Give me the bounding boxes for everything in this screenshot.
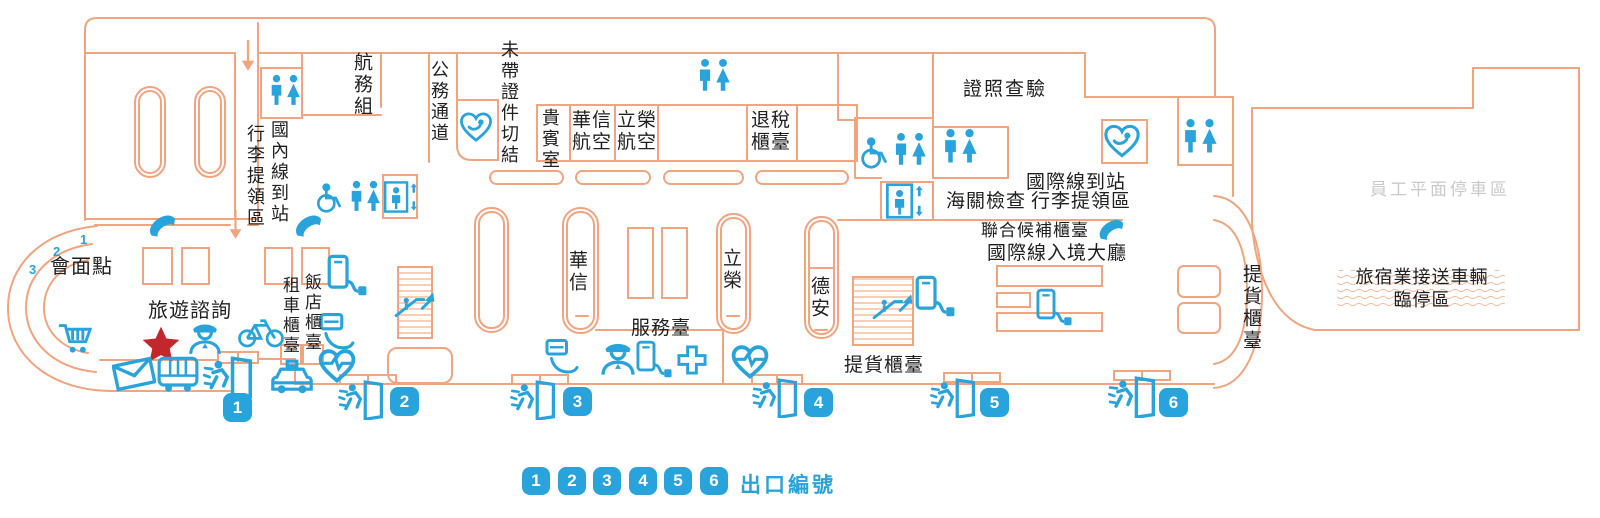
atm-card-icon	[544, 336, 580, 378]
aed-icon	[726, 342, 774, 380]
label-passport-inspection: 證照查驗	[963, 79, 1047, 101]
telephone-icon	[290, 206, 324, 242]
exit-badge-1: 1	[223, 393, 252, 422]
phone-charging-icon	[914, 274, 956, 318]
meeting-lane-number: 3	[29, 262, 36, 277]
label-vip-lounge: 貴賓室	[541, 108, 559, 171]
label-cargo-pickup-counter-east: 提貨櫃臺	[1241, 264, 1260, 352]
restroom-icon	[346, 180, 384, 214]
legend-exit-badge-4: 4	[629, 467, 657, 495]
nursing-room-icon	[458, 110, 494, 144]
taxi-icon	[268, 358, 316, 398]
escalator-icon	[392, 288, 438, 320]
elevator-icon	[384, 177, 418, 217]
label-carousel-uni: 立榮	[721, 248, 740, 292]
shopping-cart-icon	[58, 320, 96, 356]
meeting-lane-number: 1	[80, 232, 87, 247]
exit-badge-3: 3	[563, 387, 592, 416]
elevator-icon	[886, 182, 924, 220]
restroom-icon	[1178, 118, 1222, 156]
restroom-icon	[890, 132, 930, 168]
exit-badge-4: 4	[804, 388, 833, 417]
restroom-icon	[938, 128, 982, 166]
label-customs-inspection: 海關檢查	[946, 191, 1026, 213]
wheelchair-icon	[856, 136, 892, 170]
legend-title: 出口編號	[740, 469, 836, 499]
police-officer-icon	[598, 338, 638, 378]
bicycle-icon	[238, 316, 284, 350]
exit-door-icon	[926, 376, 982, 418]
label-car-rental-counter: 租車櫃臺	[281, 276, 298, 356]
label-meeting-point: 會面點	[50, 256, 113, 280]
legend-exit-badge-3: 3	[593, 467, 621, 495]
telephone-icon	[1094, 210, 1126, 246]
label-official-passage: 公務通道	[430, 60, 448, 144]
label-tax-refund-counter: 退稅 櫃臺	[751, 110, 791, 155]
mailbox-icon	[112, 354, 156, 394]
label-hotel-shuttle-zone: 旅宿業接送車輛 臨停區	[1337, 266, 1507, 311]
legend-exit-badge-5: 5	[664, 467, 692, 495]
label-carousel-daily-air: 德安	[809, 276, 828, 320]
label-intl-arrival-hall: 國際線入境大廳	[987, 243, 1127, 265]
label-joint-standby-counter: 聯合候補櫃臺	[981, 221, 1089, 241]
information-officer-icon	[186, 318, 224, 358]
phone-charging-icon	[634, 340, 674, 378]
label-cargo-pickup-counter-south: 提貨櫃臺	[844, 355, 924, 377]
label-carousel-mandarin: 華信	[567, 250, 586, 294]
phone-charging-icon	[326, 254, 368, 296]
exit-door-icon	[334, 378, 390, 420]
label-mandarin-airlines: 華信 航空	[572, 110, 612, 155]
label-hotel-counter: 飯店櫃臺	[303, 273, 320, 353]
escalator-icon	[868, 290, 918, 322]
arrow-down-icon	[240, 36, 256, 76]
restroom-icon	[266, 74, 304, 108]
terminal-floor-map: 航務組 行李提領區 國內線到站 公務通道 未帶證件切結 貴賓室 華信 航空 立榮…	[0, 0, 1600, 518]
label-service-desk: 服務臺	[631, 318, 691, 340]
label-flight-operations: 航務組	[352, 52, 371, 118]
label-domestic-arrivals: 國內線到站	[270, 120, 288, 225]
restroom-icon	[694, 58, 734, 94]
phone-charging-icon	[1034, 288, 1074, 326]
label-travel-information: 旅遊諮詢	[148, 300, 232, 324]
nursing-room-icon	[1102, 122, 1142, 160]
first-aid-icon	[676, 344, 708, 376]
exit-badge-2: 2	[390, 387, 419, 416]
label-staff-parking: 員工平面停車區	[1370, 180, 1510, 200]
legend-exit-badge-1: 1	[522, 467, 550, 495]
legend-exit-badge-2: 2	[558, 467, 586, 495]
arrow-down-icon	[228, 208, 243, 242]
label-uni-air: 立榮 航空	[617, 110, 657, 155]
meeting-lane-number: 2	[53, 244, 60, 259]
terminal-structure	[0, 0, 1600, 518]
bus-icon	[156, 354, 200, 394]
label-intl-baggage-claim: 行李提領區	[1031, 191, 1131, 213]
exit-door-icon	[748, 376, 804, 418]
telephone-icon	[144, 206, 178, 242]
exit-badge-6: 6	[1159, 388, 1188, 417]
exit-door-icon	[1104, 374, 1162, 418]
legend-exit-badge-6: 6	[700, 467, 728, 495]
label-domestic-baggage-claim: 行李提領區	[246, 124, 264, 229]
label-no-document-affidavit: 未帶證件切結	[500, 40, 518, 166]
exit-door-icon	[506, 378, 562, 420]
exit-badge-5: 5	[980, 388, 1009, 417]
